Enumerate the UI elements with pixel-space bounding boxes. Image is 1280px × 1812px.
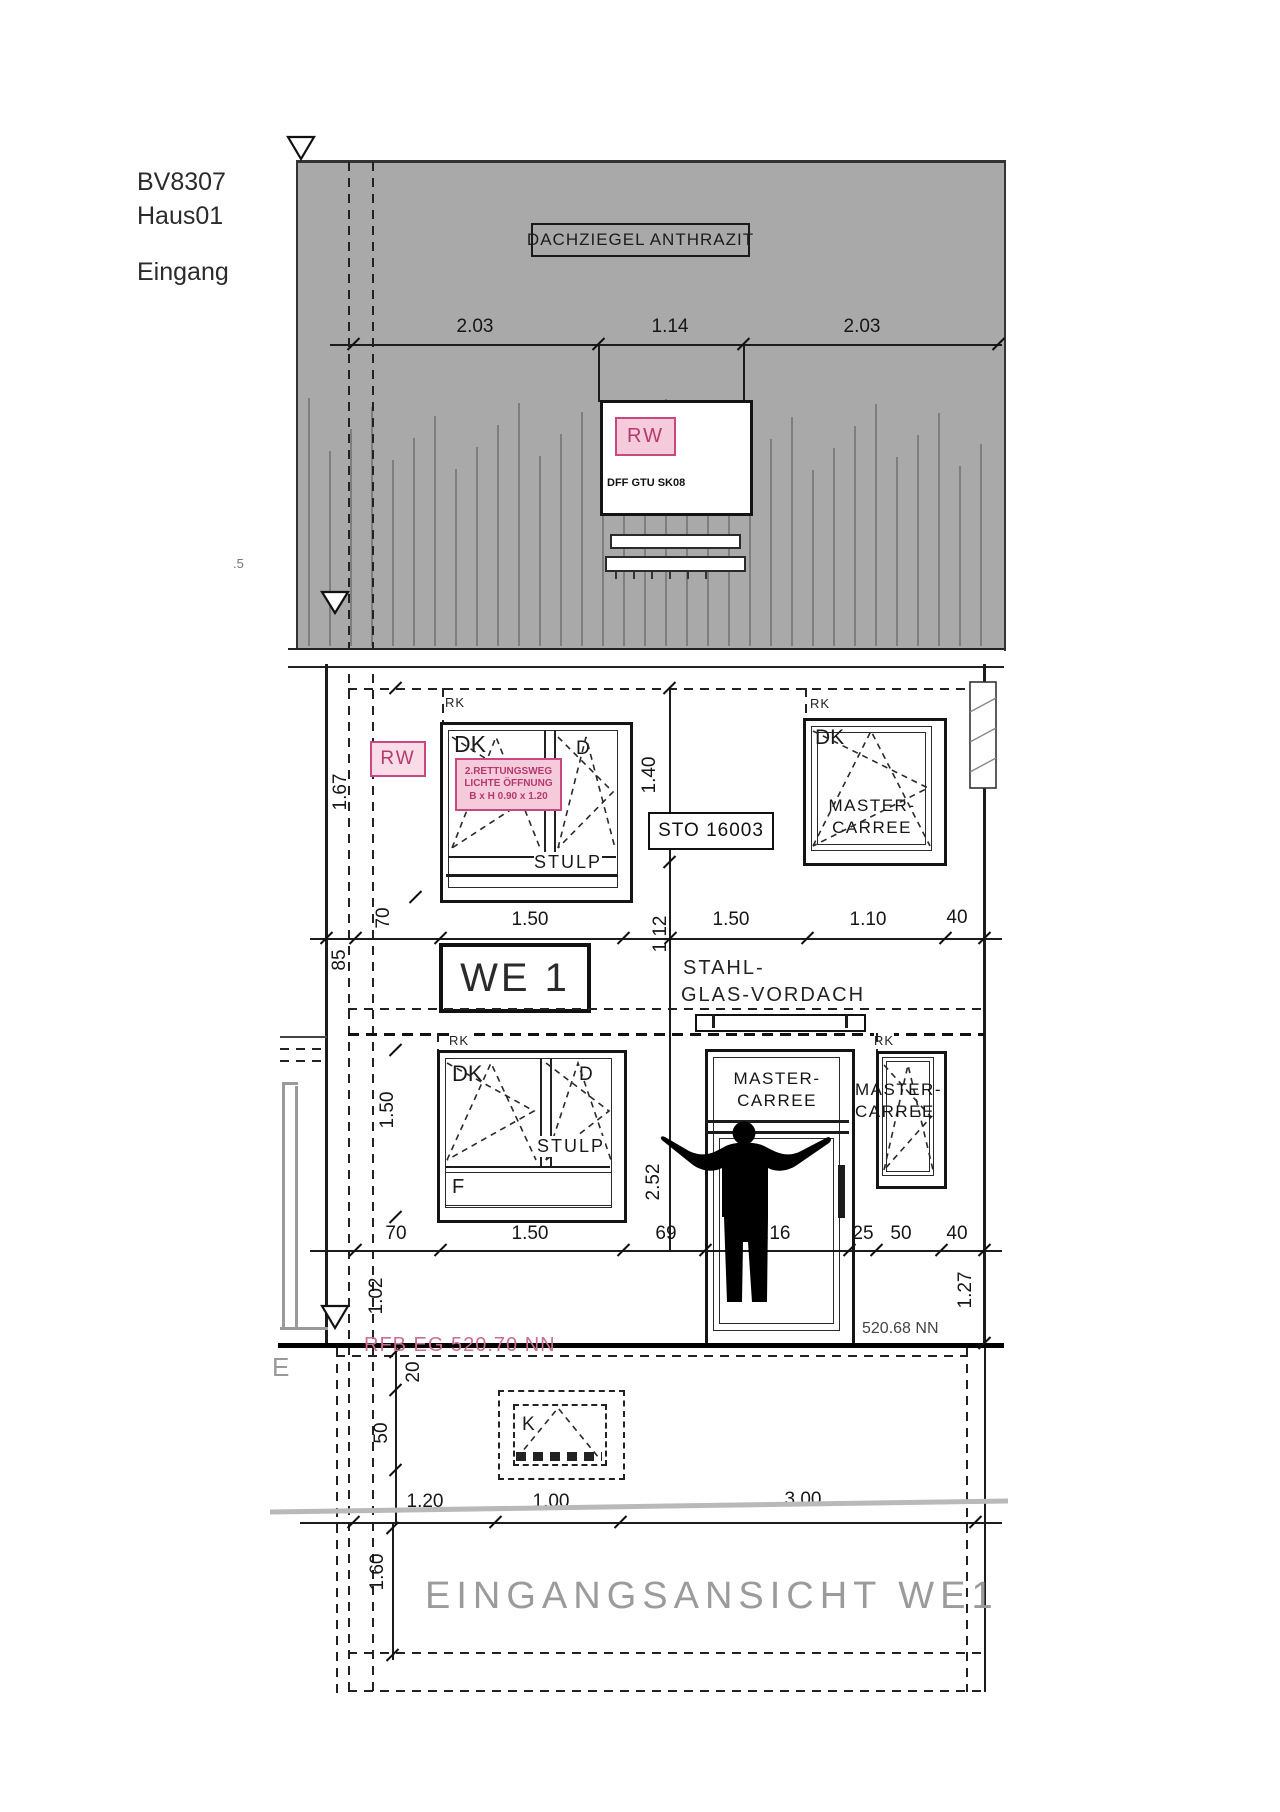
master-label-door-1: MASTER- xyxy=(734,1069,821,1089)
drop-dashed-lower-right xyxy=(876,1033,878,1051)
roof-batten xyxy=(938,413,940,646)
rk-label-lower-left: RK xyxy=(449,1033,469,1048)
axis-dashed-left-a xyxy=(348,162,350,1692)
dim-1-27: 1.27 xyxy=(955,1272,977,1309)
roof-step-bar-1 xyxy=(610,534,741,549)
dim-row2-150: 1.50 xyxy=(512,1223,549,1245)
neighbor-gray-right xyxy=(295,1086,298,1330)
cut-dimension-left: .5 xyxy=(233,556,244,571)
roof-batten xyxy=(791,417,793,646)
master-label-door-2: CARREE xyxy=(737,1091,817,1111)
roof-batten xyxy=(329,451,331,646)
canopy-label-1: STAHL- xyxy=(683,957,765,980)
plinth-dim-line xyxy=(395,1348,397,1522)
house-code: Haus01 xyxy=(137,202,223,231)
right-dim-chain xyxy=(984,1345,986,1692)
roof-batten xyxy=(980,444,982,646)
dk-label-lower-left: DK xyxy=(452,1061,483,1087)
master-label-upper-right-2: CARREE xyxy=(832,818,912,838)
dim-row1-40: 40 xyxy=(946,907,967,929)
neighbor-dashed-1 xyxy=(280,1048,327,1050)
roof-batten xyxy=(875,404,877,646)
roof-batten xyxy=(854,426,856,646)
rescue-line-1: 2.RETTUNGSWEG xyxy=(465,766,552,779)
basement-bottom-dashed-2 xyxy=(348,1690,984,1692)
d-label-lower-left: D xyxy=(579,1064,593,1086)
roof-window-rw-tag: RW xyxy=(615,417,676,456)
dim-row2-25: 25 xyxy=(852,1223,873,1245)
roof-material-box: DACHZIEGEL ANTHRAZIT xyxy=(531,223,750,257)
wall-rw-tag: RW xyxy=(370,741,426,777)
elevation-drawing: BV8307 Haus01 Eingang .5 DACHZIEGEL ANTH… xyxy=(0,0,1280,1812)
dim-row1-150b: 1.50 xyxy=(713,909,750,931)
dim-1-60: 1.60 xyxy=(367,1554,389,1591)
roof-batten xyxy=(917,435,919,646)
drop-dashed-lower-left xyxy=(437,1033,439,1050)
dim-row1-150a: 1.50 xyxy=(512,909,549,931)
roof-batten xyxy=(434,416,436,646)
roof-dim-line xyxy=(330,344,1002,346)
canopy-bar xyxy=(695,1014,866,1032)
roof-batten xyxy=(539,456,541,646)
door-handle xyxy=(838,1165,845,1218)
roof-dim-1: 2.03 xyxy=(457,316,494,338)
dim-row1-70: 70 xyxy=(373,907,395,928)
view-name: Eingang xyxy=(137,258,229,287)
neighbor-gray-cap xyxy=(282,1082,298,1085)
dim-row3-line xyxy=(300,1522,1002,1524)
dim-row1-110: 1.10 xyxy=(850,909,887,931)
dim-85: 85 xyxy=(329,949,351,970)
rk-label-upper-left: RK xyxy=(445,695,465,710)
dim-row3-120: 1.20 xyxy=(407,1491,444,1513)
dim-row3-100: 1.00 xyxy=(533,1491,570,1513)
wall-edge-left xyxy=(325,664,328,1345)
level-label-right: 520.68 NN xyxy=(862,1320,939,1338)
roof-batten xyxy=(392,460,394,646)
dim-row1-112: 1.12 xyxy=(650,916,672,953)
roof-batten xyxy=(308,398,310,646)
roof-batten xyxy=(350,429,352,646)
roof-window-stub-right xyxy=(743,344,745,402)
neighbor-dashed-2 xyxy=(280,1060,327,1062)
drop-dashed-upper-right xyxy=(805,688,807,718)
neighbor-gray-left xyxy=(282,1082,285,1330)
person-silhouette xyxy=(658,1120,836,1308)
roof-batten xyxy=(518,403,520,646)
roof-dim-3: 2.03 xyxy=(844,316,881,338)
roof-batten xyxy=(476,447,478,646)
window-upper-left-sill xyxy=(446,874,618,877)
project-code: BV8307 xyxy=(137,168,226,197)
rk-label-upper-right: RK xyxy=(810,696,830,711)
cut-label-e: E xyxy=(272,1352,289,1383)
cellar-window-sill-dashes xyxy=(516,1452,602,1461)
roof-batten xyxy=(833,448,835,646)
basement-right-dashed xyxy=(966,1348,968,1692)
dk-label-upper-left: DK xyxy=(454,731,486,758)
master-label-narrow-1: MASTER- xyxy=(855,1080,942,1100)
window-lower-left-sashline xyxy=(445,1166,610,1168)
sto-color-box: STO 16003 xyxy=(648,812,774,850)
dim-row2-line xyxy=(310,1250,1002,1252)
canopy-post-left xyxy=(712,1014,715,1028)
rescue-line-2: LICHTE ÖFFNUNG xyxy=(464,778,552,791)
dim-row2-50: 50 xyxy=(890,1223,911,1245)
eave-fascia xyxy=(288,648,1004,668)
canopy-post-right xyxy=(845,1014,848,1028)
dim-1-50-vert: 1.50 xyxy=(377,1092,399,1129)
sto-label: STO 16003 xyxy=(658,820,764,842)
stulp-label-lower: STULP xyxy=(537,1136,605,1157)
rw-label: RW xyxy=(627,425,664,448)
roof-step-ticks xyxy=(615,572,710,579)
drawing-title: EINGANGSANSICHT WE1 xyxy=(425,1575,999,1618)
master-label-narrow-2: CARREE xyxy=(855,1102,935,1122)
roof-batten xyxy=(896,457,898,646)
d-label-upper-left: D xyxy=(576,738,590,760)
roof-batten xyxy=(770,439,772,646)
canopy-label-2: GLAS-VORDACH xyxy=(681,984,865,1007)
roof-batten xyxy=(959,466,961,646)
terrain-line xyxy=(270,1501,1008,1512)
roof-batten xyxy=(560,434,562,646)
roof-material-label: DACHZIEGEL ANTHRAZIT xyxy=(527,230,754,250)
dim-50-left: 50 xyxy=(371,1422,393,1443)
rescue-line-3: B x H 0.90 x 1.20 xyxy=(469,791,547,804)
f-label: F xyxy=(452,1176,464,1199)
basement-bottom-dashed-1 xyxy=(348,1652,984,1654)
unit-label-box: WE 1 xyxy=(439,943,591,1013)
k-label: K xyxy=(522,1414,535,1436)
level-label-left: RFB EG 520.70 NN xyxy=(364,1334,556,1357)
master-label-upper-right-1: MASTER- xyxy=(829,796,916,816)
roof-batten xyxy=(455,469,457,646)
wall-edge-right xyxy=(983,664,986,1345)
dim-row3-300: 3.00 xyxy=(785,1489,822,1511)
dk-label-upper-right: DK xyxy=(815,726,844,750)
unit-label: WE 1 xyxy=(460,956,570,1001)
drop-dashed-upper-left xyxy=(442,688,444,722)
dimension-tick xyxy=(389,1043,402,1056)
roof-dim-2: 1.14 xyxy=(652,316,689,338)
window-lower-left-fixed xyxy=(445,1172,612,1206)
dimension-tick xyxy=(389,1210,402,1223)
dim-1-40: 1.40 xyxy=(639,757,661,794)
roof-batten xyxy=(812,470,814,646)
dimension-tick xyxy=(409,890,422,903)
rescue-way-box: 2.RETTUNGSWEG LICHTE ÖFFNUNG B x H 0.90 … xyxy=(455,758,562,811)
canopy-dashed-line xyxy=(348,1008,984,1010)
dim-20: 20 xyxy=(403,1361,425,1382)
dim-row2-70: 70 xyxy=(385,1223,406,1245)
dim-row2-40: 40 xyxy=(946,1223,967,1245)
dim-1-02: 1.02 xyxy=(366,1278,388,1315)
stulp-label-upper: STULP xyxy=(534,852,602,873)
dim-1-67: 1.67 xyxy=(330,774,352,811)
roof-batten xyxy=(581,412,583,646)
neighbor-gray-base xyxy=(280,1327,328,1330)
wall-rw-label: RW xyxy=(380,748,415,770)
roof-window-stub-left xyxy=(598,344,600,402)
dim-160-line xyxy=(392,1522,394,1660)
roof-window-type: DFF GTU SK08 xyxy=(607,477,685,489)
roof-batten xyxy=(413,438,415,646)
neighbor-top-line xyxy=(280,1036,327,1038)
roof-step-bar-2 xyxy=(605,556,746,572)
roof-batten xyxy=(497,425,499,646)
